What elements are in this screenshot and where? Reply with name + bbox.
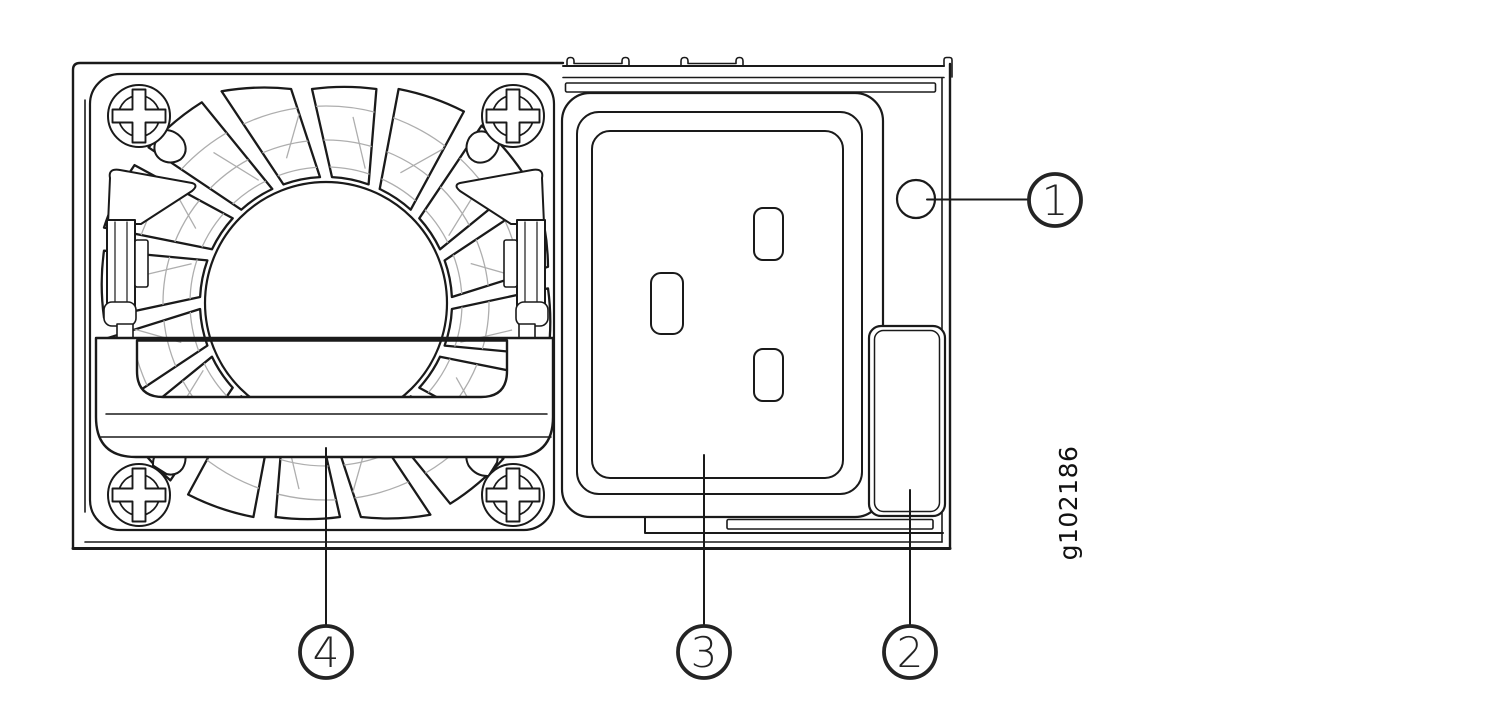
retainer-latch bbox=[869, 326, 945, 516]
inlet-pin-slot-bottom bbox=[754, 349, 783, 401]
top-lip-slot-bar bbox=[566, 83, 936, 92]
inlet-middle-bezel bbox=[577, 112, 862, 494]
fan-hub-opening bbox=[205, 182, 447, 424]
hinge-tab-left bbox=[135, 240, 148, 287]
inlet-pin-slot-ground bbox=[651, 273, 683, 334]
callout-3-label: 3 bbox=[691, 628, 718, 677]
power-supply-faceplate-diagram: 1 2 3 4 g102186 bbox=[0, 0, 1501, 704]
phillips-screw-bottom-left-icon bbox=[108, 464, 170, 526]
callout-2-label: 2 bbox=[897, 628, 924, 677]
callout-2: 2 bbox=[884, 626, 936, 678]
figure-id-label: g102186 bbox=[1054, 446, 1083, 561]
phillips-screw-top-right-icon bbox=[482, 85, 544, 147]
callout-1: 1 bbox=[1029, 174, 1081, 226]
hinge-foot-left bbox=[104, 302, 136, 326]
inlet-outer-bezel bbox=[562, 93, 883, 517]
hinge-tab-right bbox=[504, 240, 517, 287]
phillips-screw-top-left-icon bbox=[108, 85, 170, 147]
phillips-screw-bottom-right-icon bbox=[482, 464, 544, 526]
fan-module bbox=[90, 74, 554, 530]
callout-1-label: 1 bbox=[1042, 176, 1069, 225]
power-inlet bbox=[562, 93, 945, 517]
callout-4-label: 4 bbox=[313, 628, 340, 677]
hinge-foot-right bbox=[516, 302, 548, 326]
top-lip-tab-2 bbox=[681, 58, 743, 67]
bottom-lip-slot bbox=[727, 520, 933, 530]
inlet-pin-slot-top bbox=[754, 208, 783, 260]
psu-diagram-canvas: 1 2 3 4 g102186 bbox=[0, 0, 1501, 704]
top-lip-tab-1 bbox=[567, 58, 629, 67]
callout-3: 3 bbox=[678, 626, 730, 678]
fan-blade bbox=[312, 87, 376, 185]
callout-4: 4 bbox=[300, 626, 352, 678]
inlet-face bbox=[592, 131, 843, 478]
